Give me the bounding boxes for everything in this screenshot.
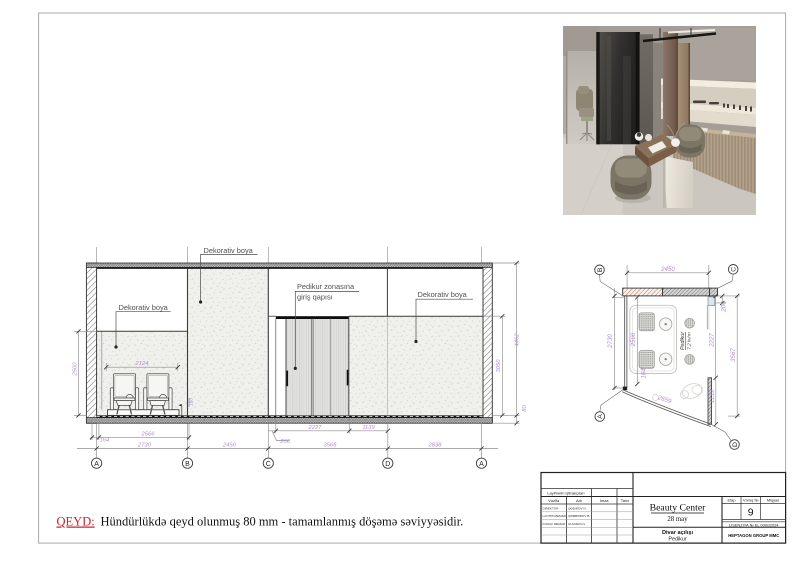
- svg-text:4462: 4462: [514, 333, 520, 347]
- svg-text:B: B: [185, 461, 190, 468]
- svg-text:Pedikur: Pedikur: [668, 537, 686, 543]
- svg-text:Dekorativ boya: Dekorativ boya: [418, 290, 468, 299]
- svg-text:164: 164: [641, 368, 648, 379]
- svg-text:2566: 2566: [141, 431, 156, 437]
- svg-text:2450: 2450: [222, 443, 237, 449]
- svg-text:Divar açılışı: Divar açılışı: [662, 530, 694, 536]
- svg-text:GULPERI N.: GULPERI N.: [568, 522, 586, 526]
- svg-text:9: 9: [748, 507, 754, 519]
- svg-text:2566: 2566: [630, 332, 637, 347]
- svg-text:A: A: [597, 414, 604, 419]
- svg-text:2838: 2838: [428, 443, 443, 449]
- svg-text:2124: 2124: [135, 361, 149, 367]
- svg-text:QƏDIROV N.: QƏDIROV N.: [568, 506, 587, 510]
- svg-text:Pedikur zonasına: Pedikur zonasına: [297, 282, 355, 291]
- svg-text:200: 200: [279, 439, 290, 445]
- svg-text:3567: 3567: [730, 348, 737, 362]
- svg-text:ICRAÇI MEMAR: ICRAÇI MEMAR: [543, 522, 567, 526]
- svg-text:7.2 kv/m: 7.2 kv/m: [687, 332, 692, 350]
- svg-text:200: 200: [721, 301, 728, 313]
- svg-text:QƏMBƏROV B.: QƏMBƏROV B.: [568, 514, 590, 518]
- svg-text:Etap: Etap: [727, 498, 735, 503]
- svg-text:2730: 2730: [607, 334, 614, 349]
- svg-text:LAYIHƏ MEMARI: LAYIHƏ MEMARI: [543, 514, 567, 518]
- svg-text:İmza: İmza: [600, 498, 609, 503]
- svg-text:giriş qapısı: giriş qapısı: [297, 293, 333, 302]
- svg-text:80: 80: [522, 405, 528, 412]
- svg-text:2450: 2450: [660, 266, 675, 273]
- svg-text:Pedikur: Pedikur: [680, 332, 686, 350]
- svg-text:164: 164: [100, 437, 110, 443]
- svg-text:28 may: 28 may: [667, 516, 688, 523]
- svg-text:3050: 3050: [496, 359, 502, 373]
- svg-text:A: A: [94, 461, 99, 468]
- svg-text:2500: 2500: [73, 362, 79, 377]
- svg-text:QEYD:: QEYD:: [57, 515, 95, 529]
- svg-text:HEPTAGON GROUP MMC: HEPTAGON GROUP MMC: [728, 533, 779, 538]
- svg-text:Dekorativ boya: Dekorativ boya: [204, 246, 254, 255]
- svg-text:B: B: [597, 267, 604, 272]
- svg-text:Tarix: Tarix: [621, 498, 629, 503]
- svg-text:Hündürlükdə qeyd olunmuş 80 mm: Hündürlükdə qeyd olunmuş 80 mm - tamamla…: [101, 515, 464, 529]
- svg-text:A: A: [479, 461, 484, 468]
- svg-text:Layihənin iştirakçıları: Layihənin iştirakçıları: [547, 491, 584, 496]
- svg-text:1139: 1139: [709, 389, 716, 403]
- svg-text:Adı: Adı: [576, 498, 582, 503]
- svg-text:2227: 2227: [308, 425, 323, 431]
- svg-text:DIREKTOR: DIREKTOR: [543, 506, 560, 510]
- svg-text:Miqyas: Miqyas: [767, 498, 779, 503]
- svg-text:2730: 2730: [137, 443, 152, 449]
- svg-text:C: C: [731, 267, 738, 272]
- svg-text:Vərəq №: Vərəq №: [743, 498, 759, 503]
- svg-text:LISENZIYA № EL 000x/2024: LISENZIYA № EL 000x/2024: [729, 522, 779, 527]
- svg-text:2227: 2227: [709, 333, 716, 348]
- svg-text:D: D: [732, 442, 739, 447]
- svg-text:C: C: [266, 461, 271, 468]
- svg-text:1139: 1139: [362, 425, 375, 431]
- svg-text:Beauty Center: Beauty Center: [650, 503, 706, 514]
- svg-text:2659: 2659: [656, 394, 673, 406]
- svg-text:Vəzifə: Vəzifə: [548, 498, 560, 503]
- svg-text:Dekorativ boya: Dekorativ boya: [119, 303, 169, 312]
- svg-text:3566: 3566: [324, 443, 338, 449]
- svg-text:150: 150: [189, 398, 195, 406]
- svg-text:D: D: [385, 461, 390, 468]
